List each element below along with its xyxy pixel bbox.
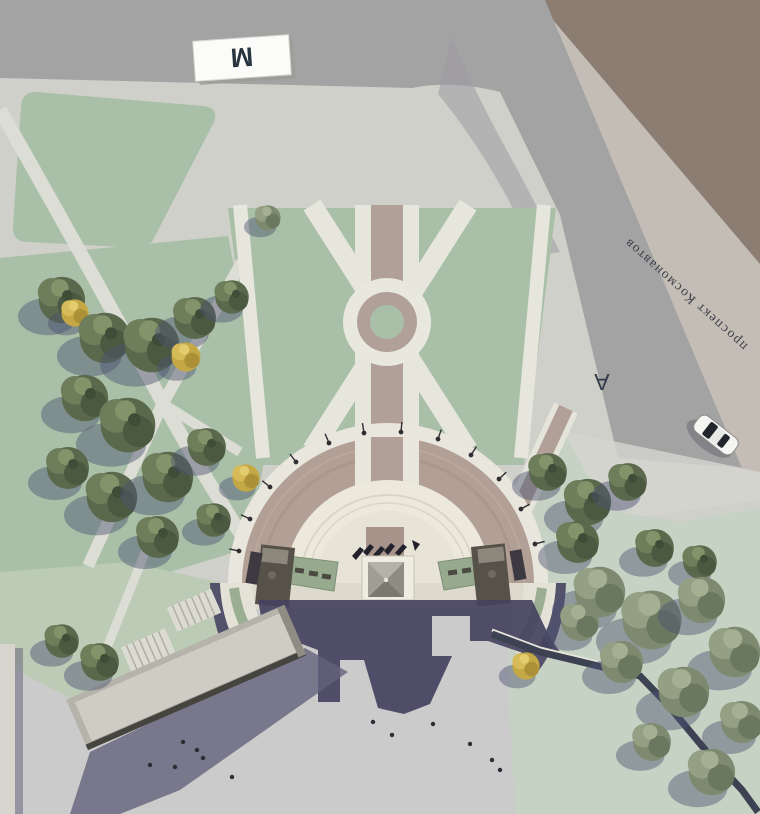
west-boundary-wall (0, 644, 23, 814)
site-plan-render: M проспект Космонавтов A (0, 0, 760, 814)
bus-stop-marking: A (594, 369, 610, 395)
metro-sign-label: M (230, 41, 255, 72)
monument-pyramid-icon (368, 562, 404, 597)
pylon-east (471, 543, 511, 606)
metro-sign: M (193, 34, 296, 85)
site-plan-svg: M проспект Космонавтов A (0, 0, 760, 814)
circle-node-green-center (370, 305, 404, 339)
